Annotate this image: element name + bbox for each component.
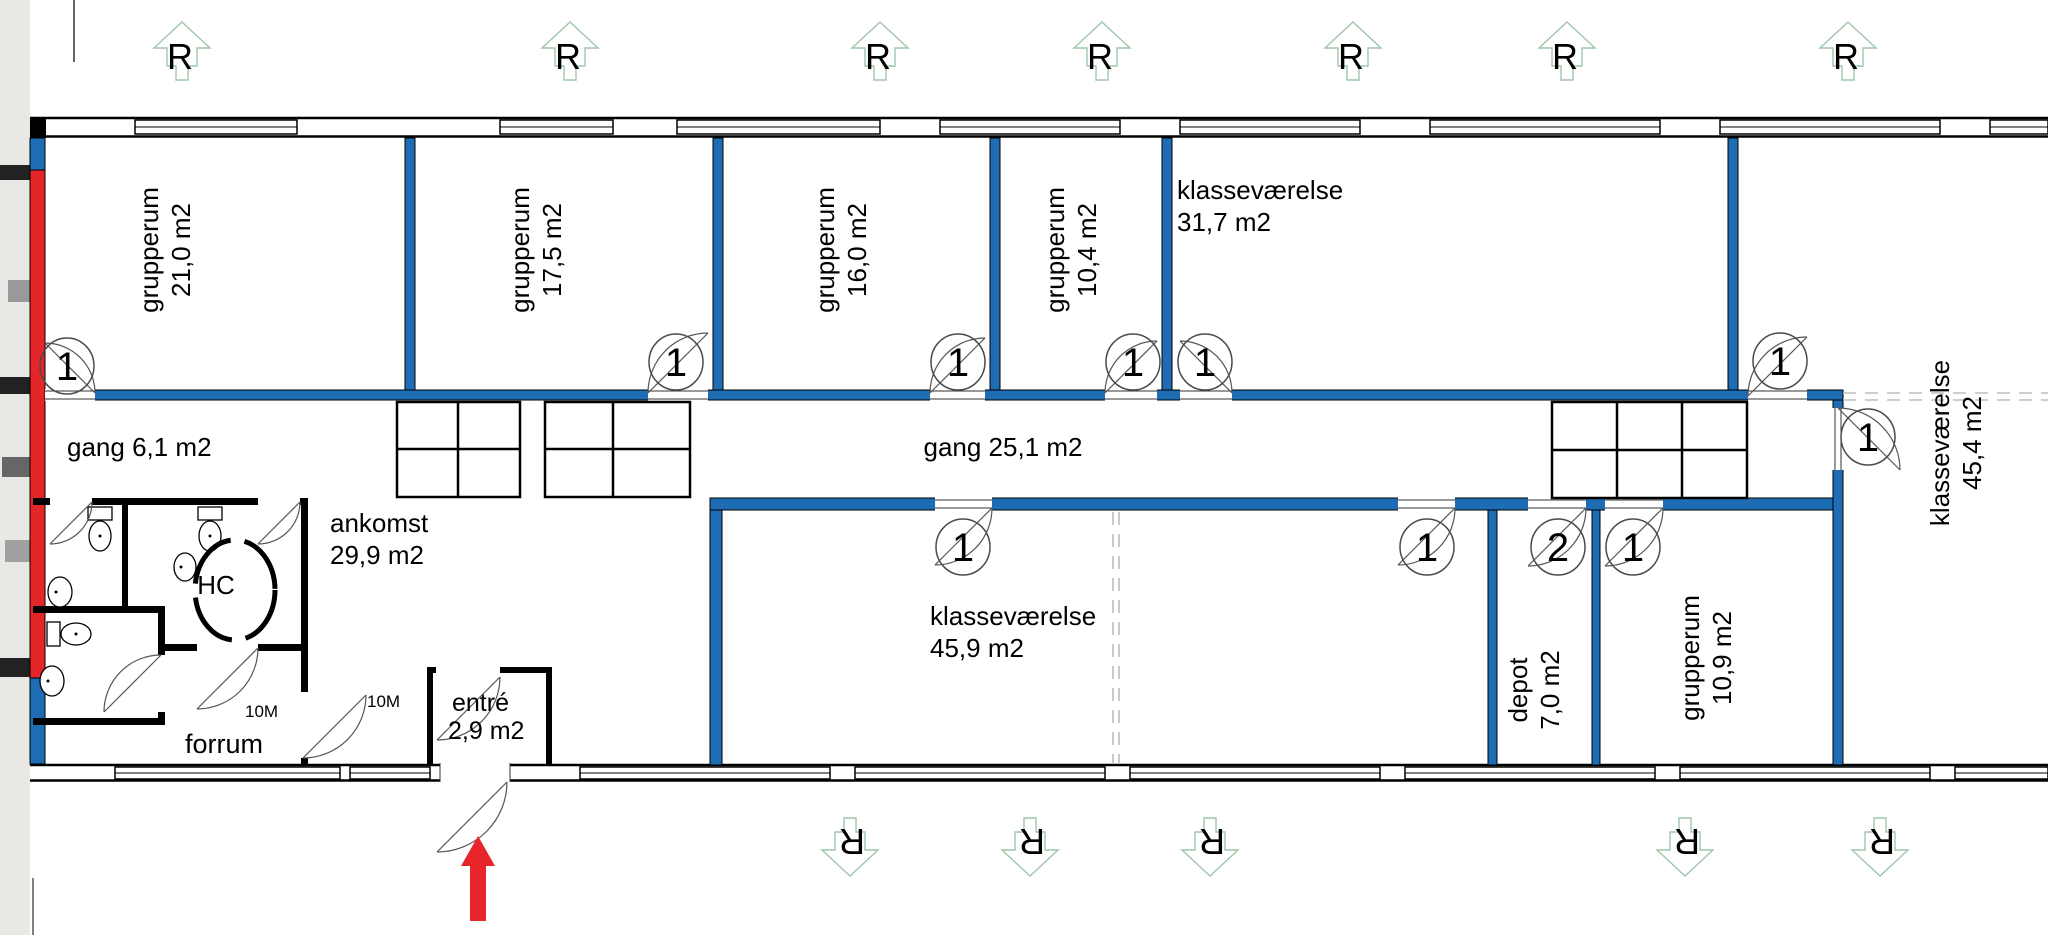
dashed-partitions bbox=[1113, 393, 2048, 763]
room-label-gang-25: gang 25,1 m2 bbox=[923, 432, 1082, 462]
room-label-grupperum-16: grupperum 16,0 m2 bbox=[810, 187, 872, 313]
roof-arrow-icon: R bbox=[1325, 22, 1381, 80]
room-label-depot: depot 7,0 m2 bbox=[1503, 650, 1565, 730]
door-number-badge: 1 bbox=[1106, 334, 1160, 390]
roof-arrow-icon: R bbox=[822, 818, 878, 876]
room-label-gang-6: gang 6,1 m2 bbox=[67, 432, 212, 462]
door-width-label: 10M bbox=[245, 702, 278, 721]
margin-mark bbox=[0, 377, 30, 394]
room-label-grupperum-17: grupperum 17,5 m2 bbox=[505, 187, 567, 313]
roof-symbols-bottom: R R R R R bbox=[822, 818, 1908, 876]
room-label-ankomst: ankomst 29,9 m2 bbox=[330, 508, 429, 570]
room-label-entre: entré 2,9 m2 bbox=[448, 689, 524, 745]
svg-text:31,7 m2: 31,7 m2 bbox=[1177, 207, 1271, 237]
svg-text:2: 2 bbox=[1547, 526, 1569, 570]
roof-letter: R bbox=[1674, 821, 1700, 862]
wall-divider bbox=[713, 138, 723, 390]
roof-arrow-icon: R bbox=[1539, 22, 1595, 80]
margin-mark bbox=[5, 540, 30, 562]
svg-text:1: 1 bbox=[1194, 341, 1216, 385]
wall-divider bbox=[405, 138, 415, 390]
door-number-badge: 1 bbox=[936, 519, 990, 575]
svg-text:1: 1 bbox=[1622, 526, 1644, 570]
svg-text:10,4 m2: 10,4 m2 bbox=[1072, 203, 1102, 297]
margin-mark bbox=[8, 280, 30, 302]
roof-symbols-top: R R R R R R R bbox=[154, 22, 1876, 80]
roof-arrow-icon: R bbox=[1182, 818, 1238, 876]
roof-letter: R bbox=[1552, 36, 1578, 77]
door-number-badge: 2 bbox=[1531, 519, 1585, 575]
roof-letter: R bbox=[1338, 36, 1364, 77]
svg-text:2,9 m2: 2,9 m2 bbox=[448, 717, 524, 745]
wall-divider bbox=[1488, 510, 1497, 765]
roof-letter: R bbox=[167, 36, 193, 77]
wall-divider bbox=[1162, 138, 1172, 390]
svg-text:1: 1 bbox=[947, 341, 969, 385]
wall-divider bbox=[1592, 510, 1600, 765]
svg-text:1: 1 bbox=[665, 341, 687, 385]
svg-text:45,9 m2: 45,9 m2 bbox=[930, 633, 1024, 663]
svg-text:10,9 m2: 10,9 m2 bbox=[1707, 611, 1737, 705]
margin-mark bbox=[0, 165, 30, 180]
roof-letter: R bbox=[865, 36, 891, 77]
svg-text:29,9 m2: 29,9 m2 bbox=[330, 540, 424, 570]
svg-text:1: 1 bbox=[56, 345, 78, 389]
svg-text:grupperum: grupperum bbox=[810, 187, 840, 313]
roof-arrow-icon: R bbox=[542, 22, 598, 80]
wall-divider bbox=[1728, 138, 1738, 390]
door-number-badge: 1 bbox=[1178, 334, 1232, 390]
svg-text:klasseværelse: klasseværelse bbox=[930, 601, 1096, 631]
roof-arrow-icon: R bbox=[1074, 22, 1130, 80]
left-wall-blue-top bbox=[30, 138, 45, 170]
svg-text:17,5 m2: 17,5 m2 bbox=[537, 203, 567, 297]
svg-text:grupperum: grupperum bbox=[1675, 595, 1705, 721]
svg-text:grupperum: grupperum bbox=[134, 187, 164, 313]
wall-divider bbox=[710, 510, 722, 765]
svg-text:7,0 m2: 7,0 m2 bbox=[1535, 650, 1565, 730]
room-label-klasse-31: klasseværelse 31,7 m2 bbox=[1177, 175, 1343, 237]
svg-text:ankomst: ankomst bbox=[330, 508, 429, 538]
roof-arrow-icon: R bbox=[852, 22, 908, 80]
room-label-klasse-45-4: klasseværelse 45,4 m2 bbox=[1925, 360, 1987, 526]
door-number-badge: 1 bbox=[1606, 519, 1660, 575]
svg-text:21,0 m2: 21,0 m2 bbox=[166, 203, 196, 297]
margin-mark bbox=[2, 457, 30, 477]
sink-icon bbox=[48, 577, 72, 607]
roof-letter: R bbox=[1199, 821, 1225, 862]
svg-text:1: 1 bbox=[1122, 341, 1144, 385]
svg-text:klasseværelse: klasseværelse bbox=[1177, 175, 1343, 205]
roof-letter: R bbox=[555, 36, 581, 77]
entrance-arrow-icon bbox=[461, 836, 495, 921]
door-width-label: 10M bbox=[367, 692, 400, 711]
corner bbox=[30, 117, 46, 138]
svg-text:klasseværelse: klasseværelse bbox=[1925, 360, 1955, 526]
roof-arrow-icon: R bbox=[154, 22, 210, 80]
room-label-grupperum-10-4: grupperum 10,4 m2 bbox=[1040, 187, 1102, 313]
svg-text:entré: entré bbox=[452, 689, 509, 717]
svg-text:1: 1 bbox=[1769, 340, 1791, 384]
roof-letter: R bbox=[1869, 821, 1895, 862]
left-wall-red bbox=[30, 170, 45, 678]
svg-text:grupperum: grupperum bbox=[1040, 187, 1070, 313]
toilet-icon bbox=[47, 622, 91, 646]
door-number-badge: 1 bbox=[1400, 519, 1454, 575]
locker-grid bbox=[1552, 402, 1747, 498]
roof-letter: R bbox=[1019, 821, 1045, 862]
door-number-badge: 1 bbox=[40, 338, 94, 394]
room-label-grupperum-10-9: grupperum 10,9 m2 bbox=[1675, 595, 1737, 721]
roof-letter: R bbox=[1833, 36, 1859, 77]
roof-letter: R bbox=[1087, 36, 1113, 77]
svg-text:1: 1 bbox=[1416, 526, 1438, 570]
svg-text:depot: depot bbox=[1503, 657, 1533, 723]
roof-letter: R bbox=[839, 821, 865, 862]
corridor-south-wall bbox=[710, 498, 1843, 510]
floor-plan: R R R R R R R R bbox=[0, 0, 2048, 935]
windows-bottom bbox=[115, 767, 2048, 779]
svg-text:grupperum: grupperum bbox=[505, 187, 535, 313]
toilet-icon bbox=[88, 507, 112, 551]
roof-arrow-icon: R bbox=[1002, 818, 1058, 876]
room-labels: grupperum 21,0 m2 grupperum 17,5 m2 grup… bbox=[67, 175, 1987, 759]
svg-text:16,0 m2: 16,0 m2 bbox=[842, 203, 872, 297]
door-number-badge: 1 bbox=[1841, 409, 1895, 465]
room-label-forrum: forrum bbox=[185, 729, 263, 759]
wall-divider bbox=[990, 138, 1000, 390]
toilet-block bbox=[33, 497, 309, 765]
room-label-hc: HC bbox=[197, 570, 235, 600]
door-number-badge: 1 bbox=[1753, 333, 1807, 389]
roof-arrow-icon: R bbox=[1820, 22, 1876, 80]
sink-icon bbox=[40, 666, 64, 696]
roof-arrow-icon: R bbox=[1657, 818, 1713, 876]
svg-text:45,4 m2: 45,4 m2 bbox=[1957, 396, 1987, 490]
room-label-klasse-45-9: klasseværelse 45,9 m2 bbox=[930, 601, 1096, 663]
room-label-grupperum-21: grupperum 21,0 m2 bbox=[134, 187, 196, 313]
roof-arrow-icon: R bbox=[1852, 818, 1908, 876]
svg-text:1: 1 bbox=[1857, 416, 1879, 460]
svg-text:1: 1 bbox=[952, 526, 974, 570]
locker-grid bbox=[545, 402, 690, 497]
margin-mark bbox=[0, 658, 30, 677]
sink-icon bbox=[174, 553, 196, 581]
locker-grid bbox=[397, 402, 520, 497]
